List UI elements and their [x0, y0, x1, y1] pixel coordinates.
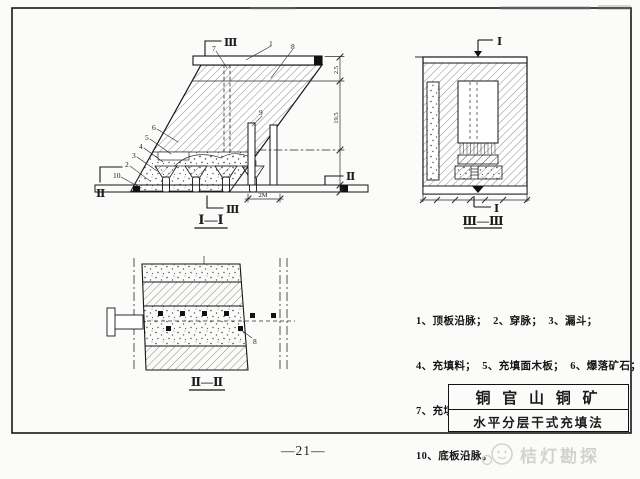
- callout-8: 8: [291, 42, 295, 51]
- svg-text:Ⅱ: Ⅱ: [96, 188, 105, 200]
- callout-1: 1: [269, 39, 273, 48]
- callout-9: 9: [259, 108, 263, 117]
- callout-4: 4: [139, 142, 143, 151]
- watermark: 桔灯勘探: [480, 440, 600, 468]
- bottom-dimension-line: [420, 194, 530, 203]
- dim-raise-spacing: 2M: [258, 192, 267, 199]
- callout-8-s2: 8: [253, 337, 257, 346]
- section-I-I-drawing: 2.5 19.5 2M Ⅲ Ⅲ Ⅱ: [95, 37, 368, 228]
- man-raise-left: [248, 123, 255, 185]
- callout-3: 3: [132, 151, 136, 160]
- scanned-page: { "page": { "number": "—21—", "watermark…: [0, 0, 640, 477]
- work-floor-band: [458, 155, 498, 164]
- section-title-III-III: Ⅲ—Ⅲ: [462, 214, 504, 228]
- legend-line-2: 4、充填料； 5、充填面木板； 6、爆落矿石；: [416, 359, 616, 374]
- section-mark-III-top: Ⅲ: [205, 37, 237, 56]
- section-II-II-drawing: 8 Ⅱ—Ⅱ: [107, 256, 295, 390]
- section-mark-I-top: Ⅰ: [474, 36, 502, 57]
- chute-ladder: [471, 166, 478, 179]
- banded-column: [130, 264, 260, 370]
- method-name: 水平分层干式充填法: [449, 410, 628, 432]
- section-title-I-I: Ⅰ—Ⅰ: [198, 212, 223, 227]
- callout-2: 2: [125, 160, 129, 169]
- section-title-II-II: Ⅱ—Ⅱ: [191, 375, 223, 389]
- svg-text:Ⅰ: Ⅰ: [497, 36, 502, 48]
- callout-6: 6: [152, 123, 156, 132]
- section-III-III-drawing: Ⅰ Ⅰ Ⅲ—Ⅲ: [415, 36, 530, 228]
- legend-line-1: 1、顶板沿脉； 2、穿脉； 3、漏斗；: [416, 314, 616, 329]
- callout-5: 5: [145, 133, 149, 142]
- page-number: —21—: [281, 443, 326, 459]
- stope-opening: [458, 81, 498, 143]
- title-block: 铜 官 山 铜 矿 水平分层干式充填法: [448, 384, 629, 432]
- callout-10: 10: [113, 171, 121, 180]
- svg-text:Ⅱ: Ⅱ: [346, 171, 355, 183]
- crosscut-stub: [107, 308, 143, 336]
- man-raise-right: [270, 125, 277, 185]
- mine-name: 铜 官 山 铜 矿: [449, 385, 628, 410]
- roof-drift-end-block: [314, 56, 322, 65]
- dim-stope-height: 19.5: [333, 112, 340, 123]
- watermark-logo-icon: [480, 440, 516, 468]
- dim-crown-height: 2.5: [333, 66, 340, 74]
- roof-drift: [193, 56, 322, 65]
- callout-7: 7: [212, 44, 216, 53]
- svg-text:Ⅲ: Ⅲ: [226, 204, 239, 216]
- watermark-text: 桔灯勘探: [520, 442, 600, 467]
- svg-text:Ⅲ: Ⅲ: [224, 37, 237, 49]
- fill-strip: [427, 82, 439, 180]
